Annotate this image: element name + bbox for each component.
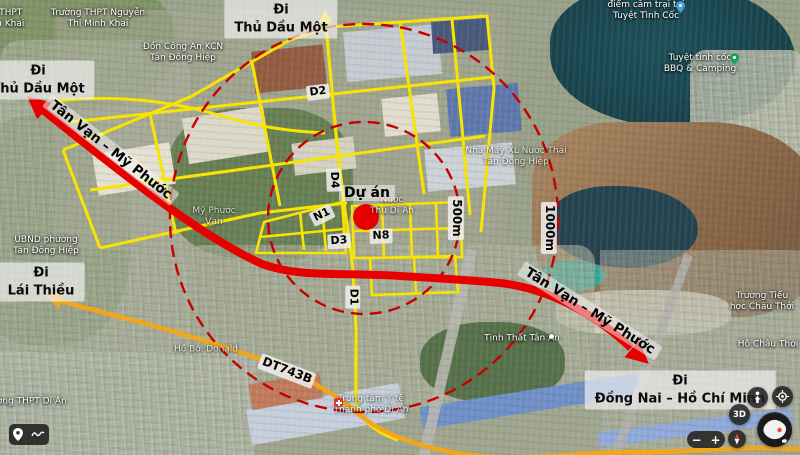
place-line: Hồ Châu Thới: [738, 339, 798, 350]
pegman-button[interactable]: [747, 387, 768, 408]
direction-label-left: Đi Thủ Dầu Một: [0, 60, 95, 99]
compass-button[interactable]: [728, 430, 746, 448]
place-label-thpt-di-an: Trường THPT Dĩ An: [0, 396, 67, 407]
place-line: UBND phường: [13, 235, 79, 246]
location-pin-icon[interactable]: [13, 428, 23, 441]
place-line: Đồn Công An KCN: [143, 42, 223, 53]
hospital-icon: [334, 398, 343, 407]
place-label-don-cong-an: Đồn Công An KCN Tân Đông Hiệp: [143, 42, 223, 65]
project-label: Dự án: [339, 185, 395, 201]
place-line: Thị Minh Khai: [0, 19, 24, 30]
place-label-ho-boi: Hồ Bơi Donald: [174, 344, 238, 355]
my-location-icon: [776, 390, 789, 403]
place-label-nha-may-xl: Nhà Máy XL Nước Thải Tân Đông Hiệp: [465, 146, 566, 169]
place-line: Tuyệt Tình Cốc: [607, 11, 684, 22]
measure-distance-icon[interactable]: [31, 430, 45, 439]
road-grid-industrial-park: [63, 16, 494, 248]
place-label-my-phuoc: Mỹ Phước Vạn: [192, 206, 235, 229]
place-label-bbq-camping: Tuyệt tình cốc BBQ & Camping: [664, 53, 736, 76]
place-label-school-left-edge: Trường THPT Thị Minh Khai: [0, 8, 24, 31]
place-line: BBQ & Camping: [664, 64, 736, 75]
direction-line: Đi: [234, 1, 327, 19]
place-line: học Châu Thới: [730, 302, 794, 313]
place-line: Thành phố Dĩ An: [334, 405, 409, 416]
white-dot-pin-icon: [549, 334, 554, 339]
place-line: điểm cắm trại tại: [607, 0, 684, 11]
pegman-icon: [752, 391, 763, 404]
place-line: Hồ Bơi Donald: [174, 344, 238, 355]
radius-label-500m: 500m: [448, 196, 464, 240]
direction-line: Thủ Dầu Một: [234, 19, 327, 37]
zoom-control[interactable]: − +: [687, 431, 725, 448]
place-line: Tân Đông Hiệp: [13, 246, 79, 257]
place-label-ubnd: UBND phường Tân Đông Hiệp: [13, 235, 79, 258]
direction-line: Đi: [595, 372, 766, 390]
my-location-button[interactable]: [772, 386, 793, 407]
green-pin-icon: [730, 53, 739, 65]
place-line: Trường THPT: [0, 8, 24, 19]
place-line: Thị Minh Khai: [51, 19, 145, 30]
direction-label-top: Đi Thủ Dầu Một: [224, 0, 337, 39]
direction-label-dong-nai: Đi Đồng Nai – Hồ Chí Minh: [585, 370, 776, 409]
place-line: Trường Tiểu: [730, 291, 794, 302]
satellite-map[interactable]: Trường THPT Nguyễn Thị Minh Khai Trường …: [0, 0, 800, 455]
zoom-out-button[interactable]: −: [691, 434, 701, 446]
place-label-camping-spot: điểm cắm trại tại Tuyệt Tình Cốc: [607, 0, 684, 22]
place-line: Trung tâm Y tế: [334, 394, 409, 405]
direction-label-lai-thieu: Đi Lái Thiều: [0, 262, 84, 301]
direction-line: Thủ Dầu Một: [0, 80, 85, 98]
place-line: Tuyệt tình cốc: [664, 53, 736, 64]
view-3d-button[interactable]: 3D: [729, 404, 750, 425]
place-label-truong-tieu-hoc: Trường Tiểu học Châu Thới: [730, 291, 794, 314]
radius-label-1000m: 1000m: [541, 202, 557, 254]
globe-button[interactable]: [757, 412, 792, 447]
road-label-d3: D3: [327, 233, 351, 249]
place-line: Mỹ Phước: [192, 206, 235, 217]
road-label-d1: D1: [346, 286, 361, 309]
place-line: Nhà Máy XL Nước Thải: [465, 146, 566, 157]
direction-line: Đi: [8, 264, 75, 282]
place-line: Vạn: [192, 217, 235, 228]
place-line: Trường THPT Nguyễn: [51, 8, 145, 19]
place-line: Tân Đông Hiệp: [143, 53, 223, 64]
direction-line: Lái Thiều: [8, 282, 75, 300]
place-line: Tân Đông Hiệp: [465, 157, 566, 168]
direction-line: Đi: [0, 62, 85, 80]
map-tools-control[interactable]: [9, 424, 49, 445]
place-line: Thủ Dĩ An: [370, 206, 414, 217]
place-label-y-te: Trung tâm Y tế Thành phố Dĩ An: [334, 394, 409, 417]
place-label-ho-chau-thoi: Hồ Châu Thới: [738, 339, 798, 350]
zoom-in-button[interactable]: +: [710, 434, 720, 446]
globe-icon: [758, 413, 792, 447]
compass-needle-icon: [733, 433, 741, 445]
place-label-school-minh-khai: Trường THPT Nguyễn Thị Minh Khai: [51, 8, 145, 31]
place-line: Trường THPT Dĩ An: [0, 396, 67, 407]
road-label-d2: D2: [306, 83, 330, 100]
blue-pin-icon: [676, 1, 685, 13]
road-label-n8: N8: [369, 228, 392, 243]
